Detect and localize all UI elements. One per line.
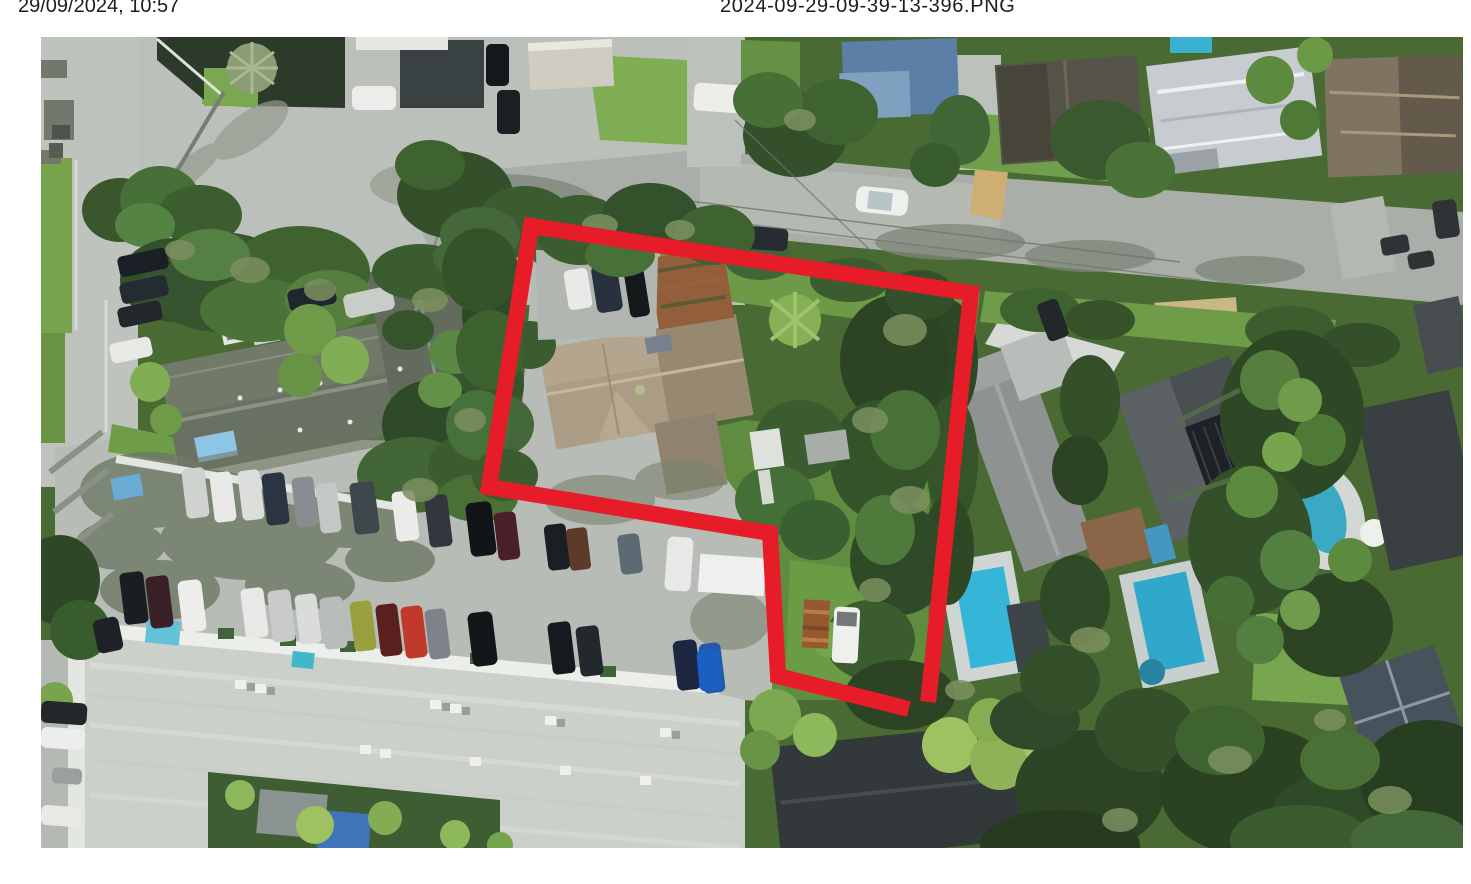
svg-text:2024-09-29-09-39-13-396.PNG: 2024-09-29-09-39-13-396.PNG	[720, 0, 1016, 17]
svg-text:29/09/2024, 10:57: 29/09/2024, 10:57	[18, 0, 179, 17]
